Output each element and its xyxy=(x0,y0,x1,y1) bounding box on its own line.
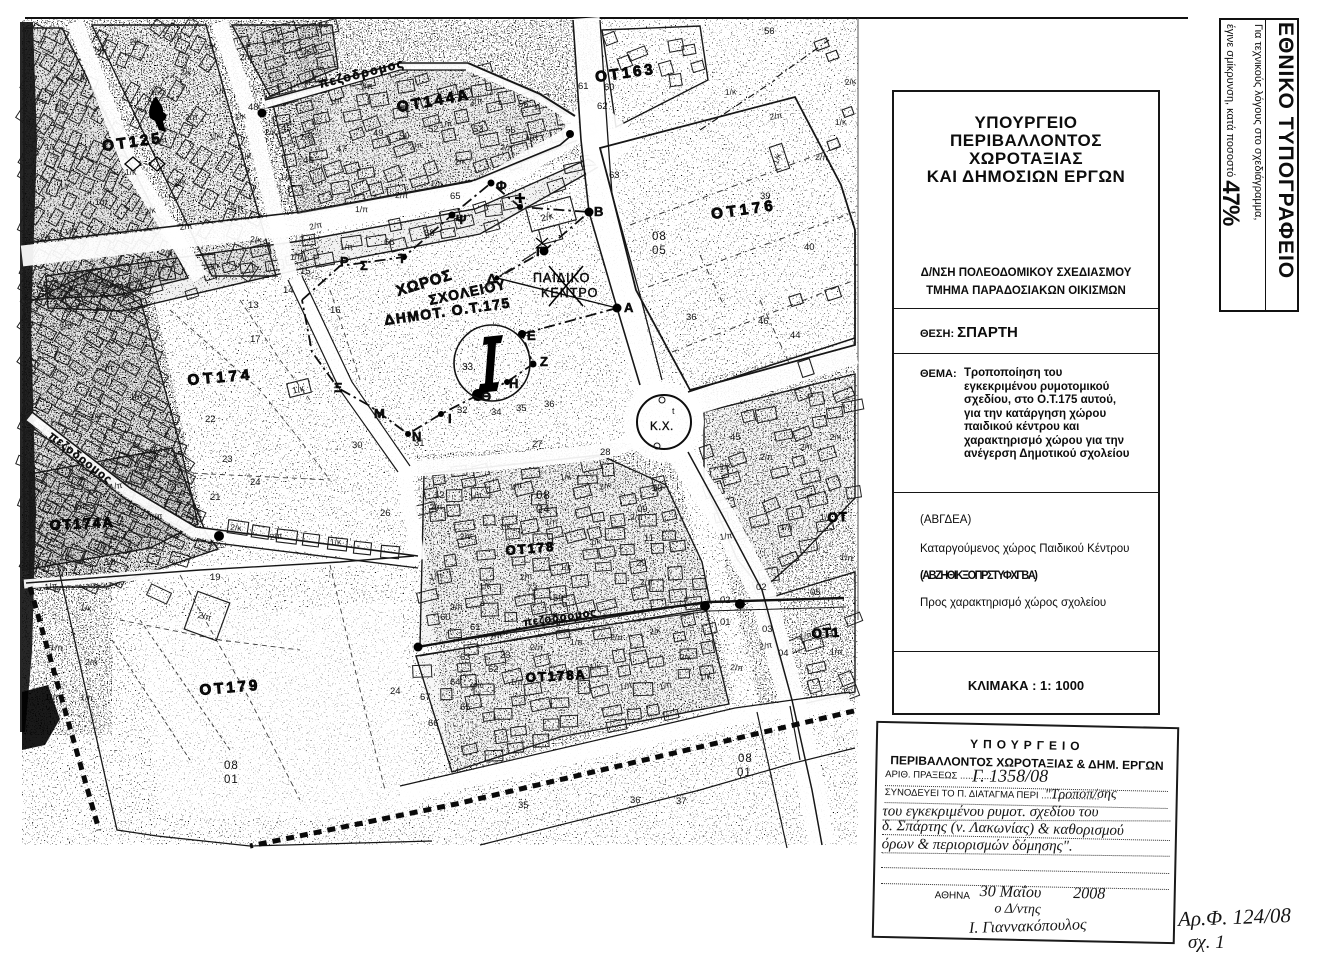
svg-text:65: 65 xyxy=(460,702,471,713)
svg-text:2/κ: 2/κ xyxy=(89,411,102,422)
svg-text:01: 01 xyxy=(224,774,239,786)
svg-text:1/π: 1/π xyxy=(430,178,444,189)
svg-text:2/π: 2/π xyxy=(760,452,773,462)
svg-text:1/π: 1/π xyxy=(550,672,563,682)
svg-text:19: 19 xyxy=(210,572,221,583)
svg-text:1/π: 1/π xyxy=(149,511,163,522)
svg-text:05: 05 xyxy=(810,587,821,598)
svg-text:1/π: 1/π xyxy=(780,522,793,532)
svg-text:2/π: 2/π xyxy=(100,362,113,372)
svg-text:18: 18 xyxy=(105,557,116,568)
svg-text:46: 46 xyxy=(758,316,769,327)
svg-text:Η: Η xyxy=(509,376,518,391)
svg-text:Τ: Τ xyxy=(398,251,406,266)
svg-text:2/π: 2/π xyxy=(185,112,198,122)
svg-text:1/π: 1/π xyxy=(830,647,843,657)
svg-text:1/π: 1/π xyxy=(510,677,523,687)
svg-text:1/π: 1/π xyxy=(290,251,304,262)
svg-text:59: 59 xyxy=(553,593,564,604)
svg-text:1/κ: 1/κ xyxy=(820,512,832,522)
svg-text:2/π: 2/π xyxy=(469,95,483,107)
svg-text:1/π: 1/π xyxy=(439,118,453,130)
svg-text:2/κ: 2/κ xyxy=(180,67,192,77)
svg-text:2/π: 2/π xyxy=(730,662,744,673)
svg-text:Ψ: Ψ xyxy=(456,212,467,227)
svg-text:11: 11 xyxy=(644,533,654,544)
svg-text:2/κ: 2/κ xyxy=(40,232,52,242)
svg-text:44: 44 xyxy=(790,330,801,341)
svg-text:21: 21 xyxy=(210,492,221,503)
svg-text:08: 08 xyxy=(224,760,239,772)
svg-text:ΟΤ174Α: ΟΤ174Α xyxy=(49,514,115,533)
svg-text:Κ.Χ.: Κ.Χ. xyxy=(650,421,674,433)
svg-text:2/π: 2/π xyxy=(640,577,653,587)
svg-text:08: 08 xyxy=(738,753,753,765)
svg-text:Β: Β xyxy=(594,204,603,219)
svg-text:03: 03 xyxy=(762,624,773,635)
svg-text:49: 49 xyxy=(373,128,384,139)
svg-text:2/κ: 2/κ xyxy=(95,542,107,552)
svg-text:73: 73 xyxy=(527,583,538,594)
svg-text:33.: 33. xyxy=(462,362,476,373)
svg-text:ΟΤ1: ΟΤ1 xyxy=(811,625,840,641)
svg-text:ΚΕΝΤΡΟ: ΚΕΝΤΡΟ xyxy=(541,286,598,300)
svg-text:1/κ: 1/κ xyxy=(560,562,572,572)
svg-text:2/π: 2/π xyxy=(74,500,88,512)
svg-text:66: 66 xyxy=(384,237,395,248)
svg-text:24: 24 xyxy=(390,686,401,697)
svg-text:66: 66 xyxy=(428,718,439,729)
svg-text:Σ: Σ xyxy=(360,258,368,273)
svg-text:Ζ: Ζ xyxy=(540,354,548,369)
svg-text:37: 37 xyxy=(676,796,687,807)
svg-text:40: 40 xyxy=(804,242,815,253)
svg-text:01: 01 xyxy=(720,617,731,628)
svg-text:39: 39 xyxy=(760,191,771,202)
svg-text:44: 44 xyxy=(318,20,329,31)
svg-text:16: 16 xyxy=(330,305,341,316)
svg-text:61: 61 xyxy=(578,81,589,92)
svg-text:1/π: 1/π xyxy=(429,570,443,582)
svg-text:1/π: 1/π xyxy=(359,80,373,92)
svg-text:13: 13 xyxy=(248,300,259,311)
svg-text:60: 60 xyxy=(440,612,451,623)
svg-text:32: 32 xyxy=(457,405,468,416)
svg-text:2/κ: 2/κ xyxy=(844,76,857,87)
svg-text:2/κ: 2/κ xyxy=(680,651,693,662)
svg-text:Ξ: Ξ xyxy=(334,380,342,395)
svg-text:2/κ: 2/κ xyxy=(129,36,142,47)
svg-text:63: 63 xyxy=(609,170,620,181)
svg-text:1/κ: 1/κ xyxy=(330,536,343,547)
svg-text:35: 35 xyxy=(516,403,527,414)
svg-text:1/κ: 1/κ xyxy=(80,602,93,613)
svg-text:2/κ: 2/κ xyxy=(230,522,243,533)
svg-text:2/κ: 2/κ xyxy=(829,431,842,442)
svg-text:2/π: 2/π xyxy=(179,220,193,232)
svg-text:1/κ: 1/κ xyxy=(725,86,738,97)
svg-text:2/κ: 2/κ xyxy=(75,72,87,82)
svg-text:36: 36 xyxy=(686,312,697,323)
svg-text:1/κ: 1/κ xyxy=(835,117,847,127)
svg-text:2/π: 2/π xyxy=(299,131,313,142)
svg-text:45: 45 xyxy=(730,432,741,443)
svg-text:10: 10 xyxy=(652,483,663,494)
svg-text:1/π: 1/π xyxy=(94,196,108,207)
svg-text:2/π: 2/π xyxy=(500,142,514,153)
svg-text:1/π: 1/π xyxy=(280,172,293,182)
svg-text:26: 26 xyxy=(380,508,391,519)
svg-text:1/π: 1/π xyxy=(525,132,538,142)
svg-text:1/π: 1/π xyxy=(340,241,354,252)
svg-text:47: 47 xyxy=(336,144,347,155)
svg-text:24: 24 xyxy=(250,477,261,488)
svg-text:23: 23 xyxy=(500,650,511,661)
svg-text:64: 64 xyxy=(450,677,461,688)
svg-text:46: 46 xyxy=(303,155,314,166)
svg-text:2/π: 2/π xyxy=(85,657,98,667)
svg-text:1/π: 1/π xyxy=(840,552,854,563)
svg-text:36: 36 xyxy=(630,795,641,806)
svg-text:1/π: 1/π xyxy=(130,392,143,402)
svg-text:1/κ: 1/κ xyxy=(269,36,282,47)
svg-text:05: 05 xyxy=(652,245,667,257)
svg-text:1/κ: 1/κ xyxy=(45,141,58,152)
svg-text:29: 29 xyxy=(636,558,647,569)
svg-text:2/π: 2/π xyxy=(429,501,443,512)
svg-text:34: 34 xyxy=(491,407,502,418)
svg-text:51: 51 xyxy=(400,104,411,115)
svg-text:Μ: Μ xyxy=(374,406,385,421)
svg-text:14: 14 xyxy=(283,285,294,296)
svg-text:2/π: 2/π xyxy=(269,530,283,542)
svg-text:2/π: 2/π xyxy=(59,551,73,562)
svg-text:2/κ: 2/κ xyxy=(454,156,467,167)
svg-text:2/π: 2/π xyxy=(610,632,623,642)
svg-text:23: 23 xyxy=(222,454,233,465)
svg-text:04: 04 xyxy=(536,504,551,516)
svg-text:63: 63 xyxy=(460,652,471,663)
svg-text:65: 65 xyxy=(450,191,461,202)
svg-text:2/κ: 2/κ xyxy=(265,126,278,137)
svg-text:2/π: 2/π xyxy=(799,441,813,452)
svg-text:04: 04 xyxy=(778,648,789,659)
svg-text:01: 01 xyxy=(737,767,752,779)
svg-text:62: 62 xyxy=(597,101,608,112)
svg-text:62: 62 xyxy=(488,664,499,675)
svg-text:67: 67 xyxy=(420,692,431,703)
svg-text:Α: Α xyxy=(624,300,634,315)
svg-text:56: 56 xyxy=(764,26,775,37)
svg-text:1/π: 1/π xyxy=(80,692,94,703)
svg-text:30: 30 xyxy=(352,440,363,451)
svg-text:2/π: 2/π xyxy=(230,202,244,213)
svg-text:2/π: 2/π xyxy=(459,531,473,542)
svg-text:22: 22 xyxy=(205,414,216,425)
svg-text:48: 48 xyxy=(248,102,259,113)
svg-text:1/κ: 1/κ xyxy=(589,536,602,547)
svg-text:2/π: 2/π xyxy=(530,642,543,652)
svg-text:17: 17 xyxy=(250,334,261,345)
svg-text:2/π: 2/π xyxy=(240,52,253,62)
svg-text:1/κ: 1/κ xyxy=(499,521,512,532)
svg-text:1/κ: 1/κ xyxy=(94,301,107,312)
svg-text:2/π: 2/π xyxy=(450,602,463,612)
svg-text:08: 08 xyxy=(652,231,667,243)
svg-text:36: 36 xyxy=(544,399,555,410)
svg-text:1/κ: 1/κ xyxy=(234,110,247,122)
svg-text:1/π: 1/π xyxy=(50,642,64,653)
svg-text:1/π: 1/π xyxy=(355,204,368,214)
svg-text:35: 35 xyxy=(518,800,529,811)
svg-text:02: 02 xyxy=(756,582,767,593)
svg-text:60: 60 xyxy=(604,82,615,93)
svg-text:1/π: 1/π xyxy=(719,530,733,542)
svg-text:55: 55 xyxy=(505,125,516,136)
svg-text:1/π: 1/π xyxy=(570,637,583,647)
svg-text:08: 08 xyxy=(536,490,551,502)
svg-text:56: 56 xyxy=(518,99,529,110)
svg-text:15: 15 xyxy=(300,266,311,277)
svg-text:1/κ: 1/κ xyxy=(120,281,133,292)
svg-text:Φ: Φ xyxy=(496,178,507,193)
svg-text:27: 27 xyxy=(532,439,543,450)
svg-text:2/π: 2/π xyxy=(815,152,828,162)
svg-text:1/π: 1/π xyxy=(544,516,558,527)
svg-text:2/π: 2/π xyxy=(160,247,174,258)
svg-text:Ε: Ε xyxy=(527,328,536,343)
svg-text:02: 02 xyxy=(720,595,731,606)
svg-text:Ι: Ι xyxy=(448,411,452,426)
svg-text:28: 28 xyxy=(600,447,611,458)
svg-text:53: 53 xyxy=(473,124,484,135)
svg-text:2/π: 2/π xyxy=(395,190,408,200)
svg-text:1/κ: 1/κ xyxy=(60,442,72,452)
svg-text:50: 50 xyxy=(399,131,410,142)
svg-text:Ρ: Ρ xyxy=(340,254,349,269)
svg-text:1/κ: 1/κ xyxy=(559,471,572,482)
svg-text:1/π: 1/π xyxy=(44,580,58,592)
svg-text:68: 68 xyxy=(424,228,435,239)
svg-text:2/κ: 2/κ xyxy=(250,234,263,245)
svg-text:1/κ: 1/κ xyxy=(150,86,163,97)
svg-text:1/κ: 1/κ xyxy=(125,167,137,177)
svg-text:31: 31 xyxy=(414,438,425,449)
svg-text:45: 45 xyxy=(281,123,292,134)
svg-text:1/κ: 1/κ xyxy=(589,660,602,672)
svg-text:2/π: 2/π xyxy=(94,45,108,57)
svg-text:12: 12 xyxy=(434,490,445,501)
svg-text:2/π: 2/π xyxy=(519,571,533,582)
svg-text:2/π: 2/π xyxy=(630,512,643,522)
svg-text:52: 52 xyxy=(428,124,439,135)
svg-text:ΠΑΙΔΙΚΟ: ΠΑΙΔΙΚΟ xyxy=(533,271,590,285)
svg-text:61: 61 xyxy=(470,622,481,633)
svg-text:2/κ: 2/κ xyxy=(174,176,187,187)
svg-text:58: 58 xyxy=(550,617,561,628)
